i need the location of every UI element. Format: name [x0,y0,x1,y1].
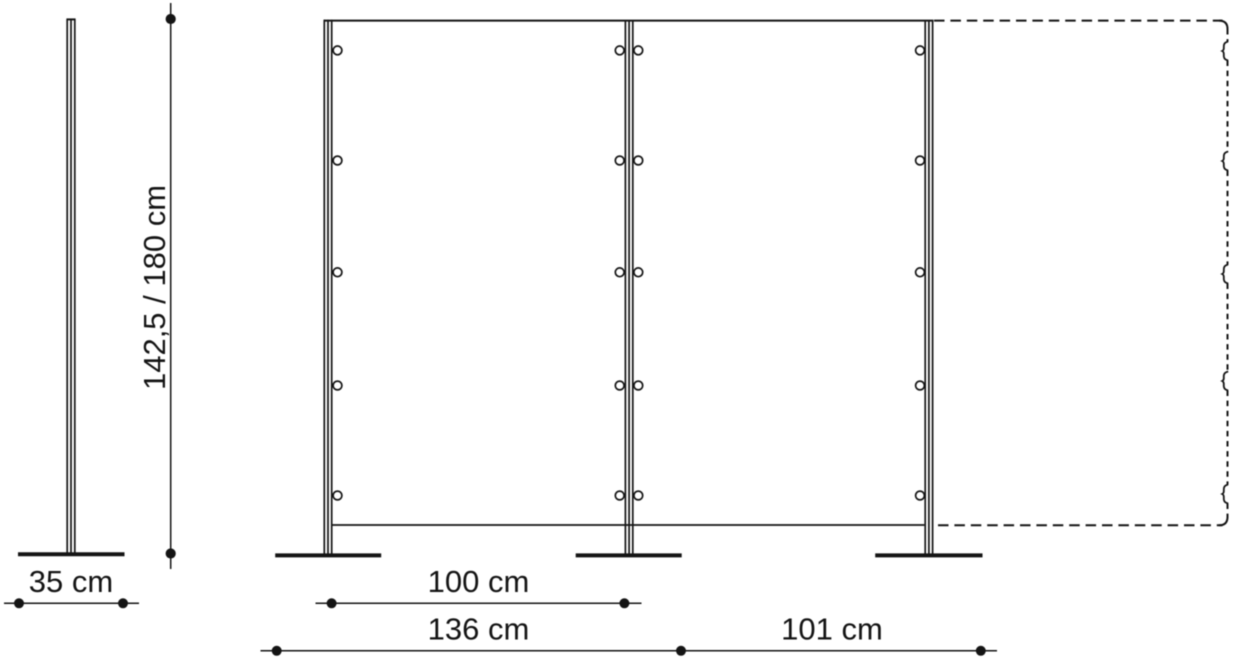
svg-text:100 cm: 100 cm [428,564,530,599]
svg-text:35 cm: 35 cm [29,564,113,599]
svg-text:101 cm: 101 cm [781,612,883,647]
svg-text:136 cm: 136 cm [428,612,530,647]
svg-text:142,5 / 180 cm: 142,5 / 180 cm [137,185,172,390]
